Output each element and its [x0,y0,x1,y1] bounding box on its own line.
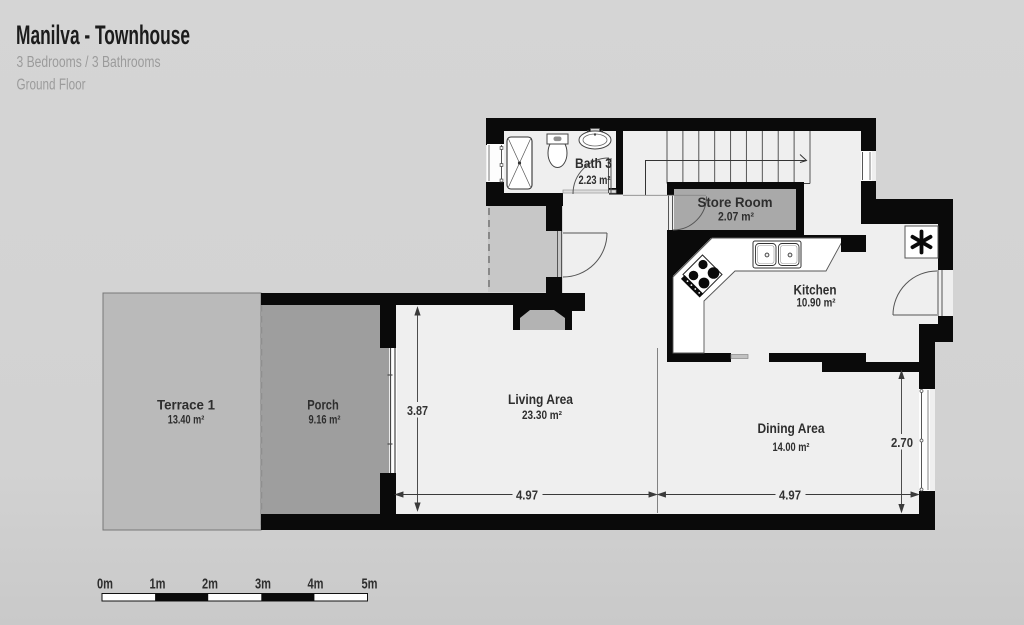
svg-text:2.70: 2.70 [891,435,913,450]
svg-text:3.87: 3.87 [407,403,428,418]
svg-text:10.90 m²: 10.90 m² [797,298,836,310]
svg-text:Store Room: Store Room [698,195,773,210]
svg-text:23.30 m²: 23.30 m² [522,410,562,422]
svg-text:Kitchen: Kitchen [794,283,837,298]
svg-text:4m: 4m [308,577,324,593]
svg-text:4.97: 4.97 [516,488,538,503]
svg-text:2m: 2m [202,577,218,593]
svg-text:2.07 m²: 2.07 m² [718,212,754,224]
svg-text:2.23 m²: 2.23 m² [579,175,611,187]
svg-text:13.40 m²: 13.40 m² [168,415,205,427]
svg-text:Terrace 1: Terrace 1 [157,397,215,413]
svg-text:Ground Floor: Ground Floor [17,77,86,94]
svg-text:3m: 3m [255,577,271,593]
svg-text:Dining Area: Dining Area [758,420,825,436]
svg-text:5m: 5m [362,577,378,593]
svg-text:Porch: Porch [307,397,339,413]
svg-text:9.16 m²: 9.16 m² [309,415,341,427]
svg-text:Bath 3: Bath 3 [575,156,612,171]
svg-text:0m: 0m [97,577,113,593]
svg-text:14.00 m²: 14.00 m² [773,442,810,454]
svg-text:4.97: 4.97 [779,488,801,503]
svg-text:1m: 1m [150,577,166,593]
svg-text:Living Area: Living Area [508,391,573,407]
svg-text:3 Bedrooms / 3 Bathrooms: 3 Bedrooms / 3 Bathrooms [17,54,161,71]
svg-text:Manilva - Townhouse: Manilva - Townhouse [16,20,190,50]
